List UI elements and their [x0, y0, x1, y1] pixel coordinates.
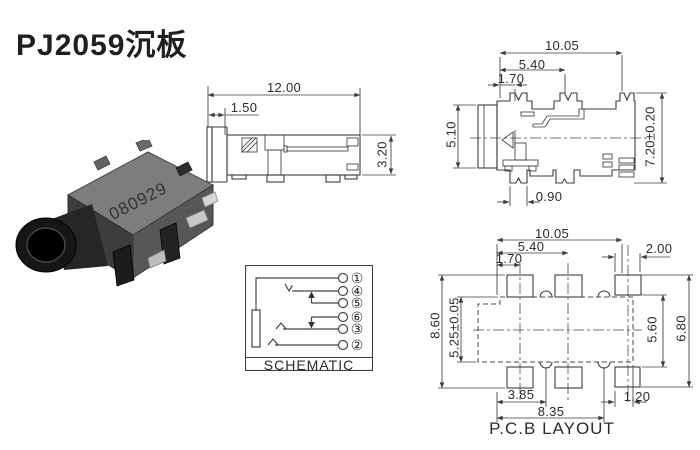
- datasheet-page: PJ2059沉板 080929: [0, 0, 700, 450]
- top-dim-pin-pitch: 5.40: [508, 57, 556, 72]
- pcb-dim-bottom-span: 8.35: [527, 404, 575, 419]
- schematic-pin-2: ②: [349, 337, 365, 354]
- top-dim-overall-depth: 7.20±0.20: [643, 97, 658, 177]
- pcb-dim-pad-offset: 1.70: [485, 251, 533, 266]
- top-dim-overall-width: 10.05: [531, 38, 593, 53]
- pcb-dim-inner-height: 5.60: [645, 305, 660, 355]
- page-title: PJ2059沉板: [16, 20, 187, 64]
- pcb-dim-outer-height: 8.60: [428, 301, 443, 351]
- side-view-inner-details: [242, 135, 358, 175]
- connector-photo: 080929: [8, 140, 218, 308]
- pcb-dim-bottom-left: 3.85: [497, 387, 545, 402]
- side-view-drawing: [195, 78, 403, 192]
- side-dim-flange: 1.50: [226, 100, 262, 115]
- schematic-pin-3: ③: [349, 321, 365, 338]
- connector-3d-body: 080929: [16, 140, 218, 286]
- top-dim-pin-width: 0.90: [527, 189, 571, 204]
- pcb-dim-pad-width: 2.00: [635, 241, 683, 256]
- schematic-label: SCHEMATIC: [246, 357, 372, 373]
- pcb-dim-pad-small: 1.20: [613, 389, 661, 404]
- side-dim-overall-width: 12.00: [252, 80, 316, 95]
- top-dim-barrel-height: 5.10: [444, 110, 459, 160]
- top-dim-pin-offset: 1.70: [487, 71, 535, 86]
- pcb-dim-body-height: 5.25±0.05: [447, 288, 462, 368]
- schematic-circuit: [252, 274, 348, 350]
- pcb-pads: [507, 275, 641, 388]
- pcb-body-outline: [478, 291, 633, 368]
- side-dim-height: 3.20: [375, 130, 390, 180]
- pcb-dim-right-height: 6.80: [674, 304, 689, 354]
- pcb-layout-label: P.C.B LAYOUT: [482, 419, 622, 439]
